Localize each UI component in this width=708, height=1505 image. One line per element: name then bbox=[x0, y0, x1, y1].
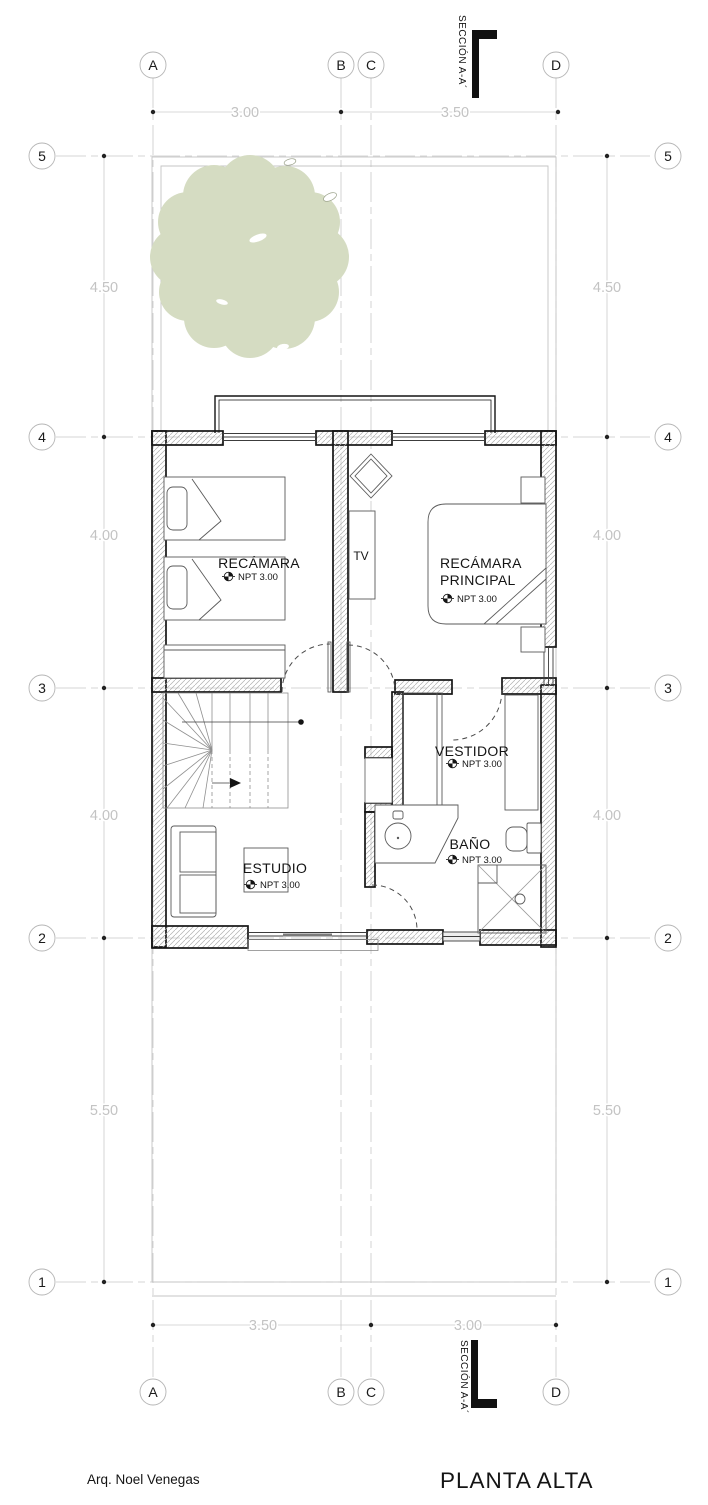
window-bedroom bbox=[223, 434, 316, 441]
stair-treads-dashed bbox=[212, 750, 268, 808]
grid-col-c-top: C bbox=[366, 57, 376, 73]
grid-row-5-left: 5 bbox=[38, 148, 46, 164]
stair-arrow-icon bbox=[230, 778, 241, 788]
exterior-wall-right-2 bbox=[541, 685, 556, 947]
grid-row-4-right: 4 bbox=[664, 429, 672, 445]
author-credit: Arq. Noel Venegas bbox=[87, 1472, 200, 1487]
dim-top-left: 3.00 bbox=[231, 105, 259, 121]
grid-col-b-top: B bbox=[336, 57, 345, 73]
bed-single-1 bbox=[164, 477, 285, 540]
interior-wall-b bbox=[333, 431, 348, 692]
drawing-title: PLANTA ALTA bbox=[440, 1468, 594, 1493]
grid-row-4-left: 4 bbox=[38, 429, 46, 445]
label-estudio: ESTUDIO bbox=[243, 860, 307, 876]
dresser bbox=[164, 645, 285, 678]
grid-row-1-right: 1 bbox=[664, 1274, 672, 1290]
door-arc-principal bbox=[348, 645, 395, 692]
balcony-rail bbox=[215, 396, 495, 433]
level-marker-icon bbox=[446, 759, 459, 768]
bath-wall-left bbox=[365, 812, 375, 887]
door-leaf-bedroom bbox=[328, 642, 331, 692]
label-principal-2: PRINCIPAL bbox=[440, 572, 516, 588]
exterior-wall-bottom-3 bbox=[480, 930, 556, 945]
stair-winders bbox=[163, 693, 212, 808]
grid-col-b-bottom: B bbox=[336, 1384, 345, 1400]
level-marker-icon bbox=[446, 855, 459, 864]
dim-right-3: 4.00 bbox=[593, 808, 621, 824]
dim-left-3: 4.00 bbox=[90, 808, 118, 824]
label-tv: TV bbox=[353, 549, 368, 563]
window-bath bbox=[443, 932, 480, 941]
grid-col-d-top: D bbox=[551, 57, 561, 73]
stair-treads bbox=[230, 693, 268, 750]
window-estudio bbox=[248, 933, 378, 951]
level-recamara: NPT 3.00 bbox=[238, 572, 278, 583]
door-arc-vestidor bbox=[452, 690, 502, 740]
floor-plan-drawing: 3.00 3.50 3.50 3.00 4.50 4.00 4.00 5.50 … bbox=[0, 0, 708, 1505]
grid-col-d-bottom: D bbox=[551, 1384, 561, 1400]
decor-diamond-icon bbox=[350, 454, 392, 498]
nightstand-bottom bbox=[521, 627, 545, 652]
level-vestidor: NPT 3.00 bbox=[462, 759, 502, 770]
label-bano: BAÑO bbox=[450, 836, 491, 852]
dim-left-4: 5.50 bbox=[90, 1103, 118, 1119]
level-marker-icon bbox=[244, 880, 257, 889]
door-arc-bath bbox=[372, 885, 417, 930]
grid-row-3-left: 3 bbox=[38, 680, 46, 696]
toilet bbox=[506, 823, 541, 853]
nightstand-top bbox=[521, 477, 545, 503]
section-cut-icon bbox=[472, 30, 497, 98]
exterior-wall-bottom-1 bbox=[152, 926, 248, 948]
grid-row-3-right: 3 bbox=[664, 680, 672, 696]
grid-row-5-right: 5 bbox=[664, 148, 672, 164]
label-recamara: RECÁMARA bbox=[218, 555, 300, 571]
dim-right-4: 5.50 bbox=[593, 1103, 621, 1119]
dim-right-2: 4.00 bbox=[593, 528, 621, 544]
vestidor-wall-left bbox=[392, 692, 403, 812]
sofa bbox=[171, 826, 216, 917]
dim-right-1: 4.50 bbox=[593, 280, 621, 296]
tree-canopy bbox=[150, 155, 349, 358]
dim-left-1: 4.50 bbox=[90, 280, 118, 296]
dim-bottom-left: 3.50 bbox=[249, 1318, 277, 1334]
door-arc-bedroom bbox=[282, 644, 330, 692]
section-marker-bottom: SECCIÓN A-A´ bbox=[458, 1340, 497, 1414]
section-cut-icon bbox=[471, 1340, 497, 1408]
structural-grid bbox=[56, 78, 652, 1378]
label-vestidor: VESTIDOR bbox=[435, 743, 509, 759]
vanity-sink bbox=[375, 805, 458, 863]
stair-direction-dot bbox=[298, 719, 304, 725]
grid-row-1-left: 1 bbox=[38, 1274, 46, 1290]
ledge-below-window bbox=[248, 940, 378, 951]
section-marker-top: SECCIÓN A-A´ bbox=[456, 15, 497, 98]
label-principal-1: RECÁMARA bbox=[440, 555, 522, 571]
stairs bbox=[163, 693, 304, 808]
level-bano: NPT 3.00 bbox=[462, 855, 502, 866]
hall-niche bbox=[365, 758, 392, 803]
dim-left-2: 4.00 bbox=[90, 528, 118, 544]
level-principal: NPT 3.00 bbox=[457, 594, 497, 605]
floor-plan-sheet: 3.00 3.50 3.50 3.00 4.50 4.00 4.00 5.50 … bbox=[0, 0, 708, 1505]
grid-bubbles: A B C D A B C D 5 4 3 2 1 5 4 3 2 1 bbox=[29, 52, 681, 1405]
section-label-bottom: SECCIÓN A-A´ bbox=[458, 1340, 471, 1414]
dim-bottom-right: 3.00 bbox=[454, 1318, 482, 1334]
exterior-wall-top-1 bbox=[152, 431, 223, 445]
closet-right bbox=[505, 695, 538, 810]
section-label-top: SECCIÓN A-A´ bbox=[456, 15, 469, 89]
interior-wall-grid3-right bbox=[502, 678, 556, 694]
grid-col-a-bottom: A bbox=[148, 1384, 158, 1400]
grid-row-2-right: 2 bbox=[664, 930, 672, 946]
shower bbox=[478, 865, 546, 933]
level-estudio: NPT 3.00 bbox=[260, 880, 300, 891]
niche-wall-top bbox=[365, 747, 392, 758]
grid-col-c-bottom: C bbox=[366, 1384, 376, 1400]
dim-top-right: 3.50 bbox=[441, 105, 469, 121]
grid-row-2-left: 2 bbox=[38, 930, 46, 946]
interior-wall-grid3-left bbox=[152, 678, 281, 692]
window-principal bbox=[392, 434, 485, 441]
grid-col-a-top: A bbox=[148, 57, 158, 73]
exterior-wall-top-2 bbox=[316, 431, 392, 445]
